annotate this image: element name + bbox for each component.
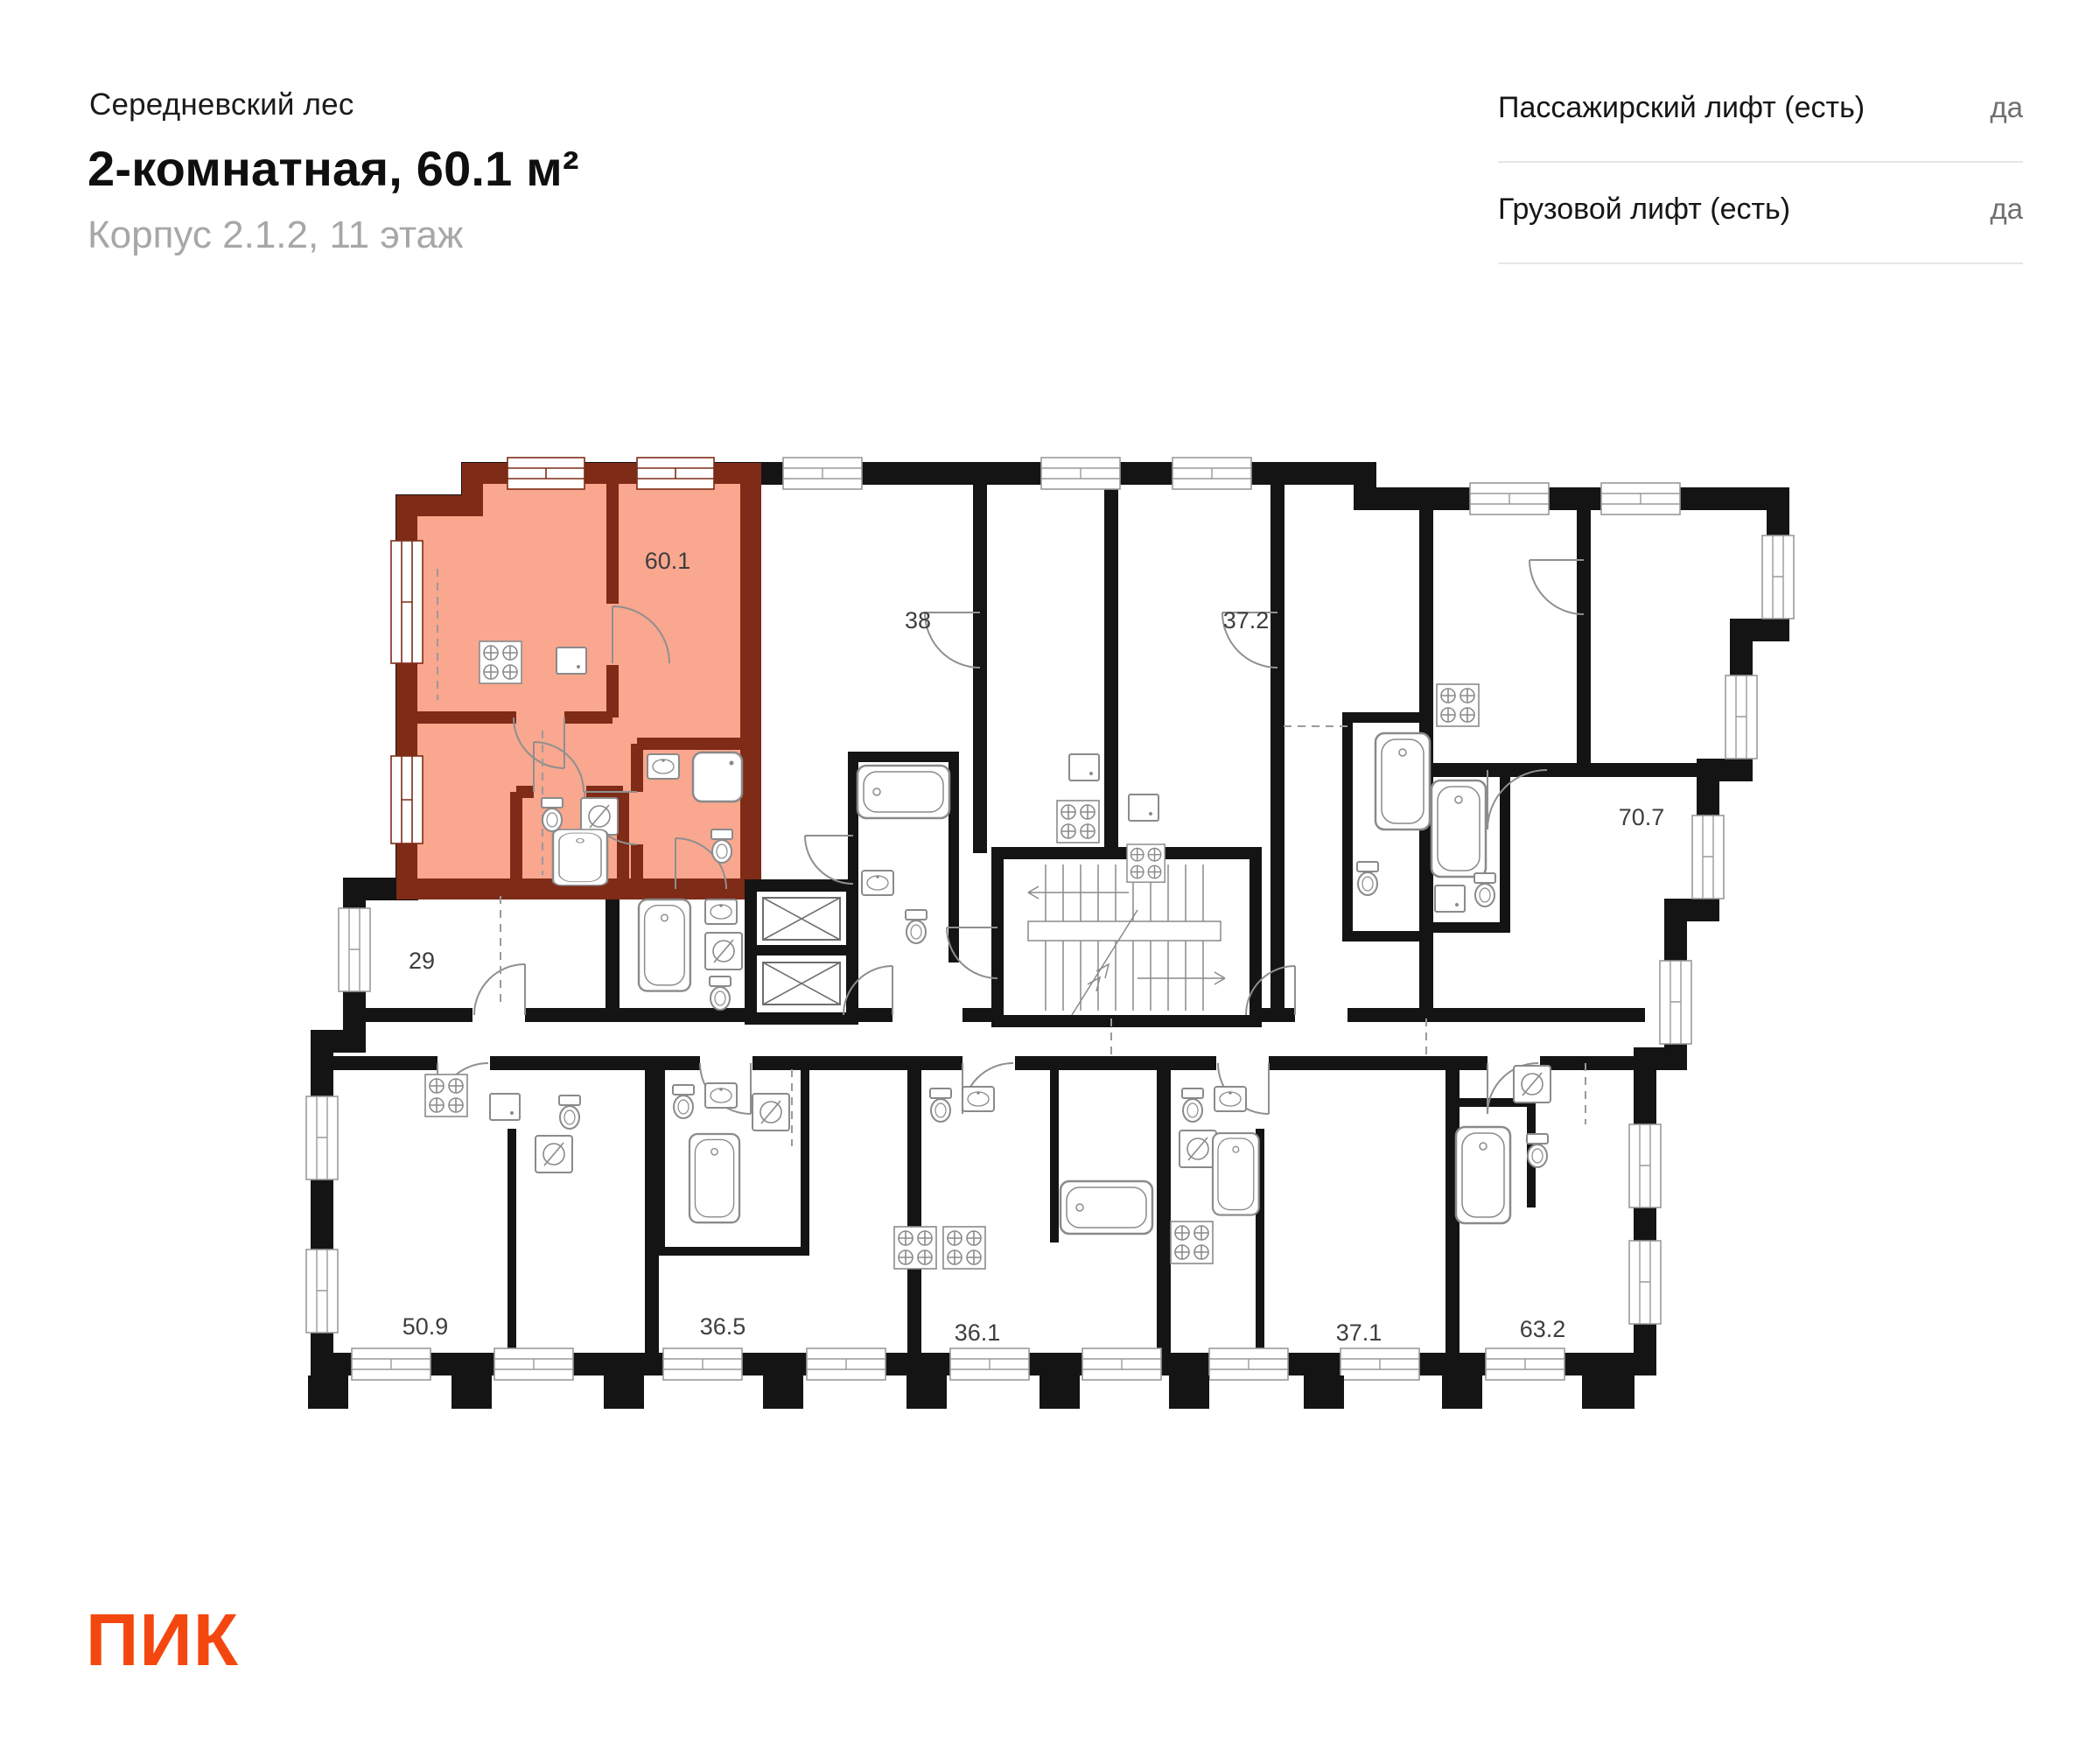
unit-area-label: 70.7 bbox=[1619, 804, 1665, 830]
stove-icon bbox=[894, 1227, 936, 1269]
toilet-icon bbox=[1527, 1134, 1548, 1167]
bathtub-icon bbox=[1431, 780, 1486, 877]
shower-icon bbox=[693, 752, 742, 801]
sink-icon bbox=[1435, 885, 1465, 912]
toilet-icon bbox=[711, 829, 732, 863]
sink-icon bbox=[647, 754, 679, 779]
bathtub-icon bbox=[1375, 733, 1430, 829]
bathtub-icon bbox=[1060, 1181, 1152, 1234]
sink-icon bbox=[556, 647, 586, 674]
elevator-core bbox=[751, 885, 852, 1018]
sink-icon bbox=[1069, 754, 1099, 780]
toilet-icon bbox=[710, 976, 731, 1010]
toilet-icon bbox=[559, 1095, 580, 1129]
washing-machine-icon bbox=[535, 1136, 572, 1172]
unit-area-label: 63.2 bbox=[1520, 1316, 1566, 1342]
bathtub-icon bbox=[639, 899, 690, 991]
sink-icon bbox=[862, 871, 893, 895]
stove-icon bbox=[1437, 684, 1479, 726]
unit-area-label: 36.1 bbox=[955, 1319, 1001, 1346]
sink-icon bbox=[705, 899, 737, 924]
sink-icon bbox=[1129, 794, 1158, 821]
unit-area-label: 37.2 bbox=[1223, 607, 1270, 633]
bathtub-icon bbox=[553, 829, 607, 885]
floor-plan: 60.1 38 37.2 70.7 29 50.9 36.5 36.1 37.1… bbox=[0, 0, 2100, 1750]
toilet-icon bbox=[1182, 1088, 1203, 1122]
toilet-icon bbox=[542, 798, 563, 831]
unit-area-label: 29 bbox=[409, 948, 435, 974]
unit-area-label: 50.9 bbox=[402, 1313, 449, 1340]
stove-icon bbox=[943, 1227, 985, 1269]
stove-icon bbox=[1171, 1221, 1213, 1263]
unit-area-label: 37.1 bbox=[1336, 1319, 1382, 1346]
washing-machine-icon bbox=[752, 1094, 789, 1130]
highlighted-unit-floor bbox=[407, 473, 751, 889]
toilet-icon bbox=[906, 910, 927, 943]
sink-icon bbox=[705, 1083, 737, 1108]
unit-area-label: 38 bbox=[905, 607, 931, 633]
sink-icon bbox=[490, 1094, 520, 1120]
toilet-icon bbox=[1474, 873, 1495, 906]
washing-machine-icon bbox=[1179, 1130, 1216, 1167]
washing-machine-icon bbox=[1514, 1066, 1550, 1102]
stove-icon bbox=[425, 1074, 467, 1116]
toilet-icon bbox=[673, 1085, 694, 1118]
bathtub-icon bbox=[689, 1134, 739, 1222]
bathtub-icon bbox=[1213, 1133, 1259, 1215]
floor-plan-page: Середневский лес 2-комнатная, 60.1 м² Ко… bbox=[0, 0, 2100, 1750]
stove-icon bbox=[479, 641, 521, 683]
toilet-icon bbox=[1357, 862, 1378, 895]
stove-icon bbox=[1057, 801, 1099, 843]
toilet-icon bbox=[930, 1088, 951, 1122]
bathtub-icon bbox=[1456, 1127, 1510, 1223]
unit-area-label: 36.5 bbox=[700, 1313, 746, 1340]
bathtub-icon bbox=[857, 766, 949, 818]
stove-icon bbox=[1127, 844, 1165, 882]
unit-area-label-highlighted: 60.1 bbox=[645, 548, 691, 574]
pik-logo: ПИК bbox=[86, 1598, 239, 1683]
sink-icon bbox=[962, 1087, 994, 1111]
sink-icon bbox=[1214, 1087, 1246, 1111]
washing-machine-icon bbox=[705, 933, 742, 969]
